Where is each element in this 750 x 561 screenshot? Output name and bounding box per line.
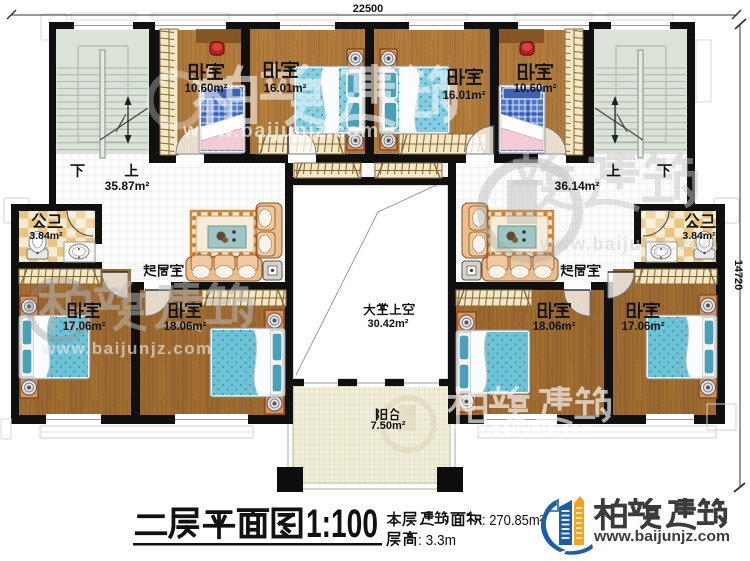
svg-text:18.06m²: 18.06m² [164, 321, 207, 333]
svg-text:: 3.3m: : 3.3m [418, 533, 456, 549]
svg-text:22500: 22500 [353, 3, 384, 15]
svg-text:1:100: 1:100 [306, 502, 378, 546]
svg-text:www.baijunjz.com: www.baijunjz.com [593, 529, 730, 545]
svg-text:www.baijunjz.com: www.baijunjz.com [182, 120, 380, 142]
svg-text:10.60m²: 10.60m² [514, 83, 557, 95]
svg-text:3.84m²: 3.84m² [29, 230, 63, 242]
svg-text:14720: 14720 [732, 260, 744, 291]
svg-text:17.06m²: 17.06m² [63, 321, 106, 333]
svg-text:7.50m²: 7.50m² [371, 420, 406, 432]
svg-text:18.06m²: 18.06m² [533, 321, 576, 333]
svg-text:: 270.85m²: : 270.85m² [482, 513, 544, 529]
svg-text:35.87m²: 35.87m² [105, 179, 150, 193]
svg-text:36.14m²: 36.14m² [555, 179, 600, 193]
svg-text:16.01m²: 16.01m² [443, 90, 486, 102]
svg-text:17.06m²: 17.06m² [622, 321, 665, 333]
svg-text:16.01m²: 16.01m² [264, 83, 307, 95]
svg-text:3.84m²: 3.84m² [682, 230, 716, 242]
svg-text:10.60m²: 10.60m² [185, 83, 228, 95]
svg-text:30.42m²: 30.42m² [368, 318, 409, 330]
svg-text:www.baijunjz.com: www.baijunjz.com [449, 420, 595, 436]
